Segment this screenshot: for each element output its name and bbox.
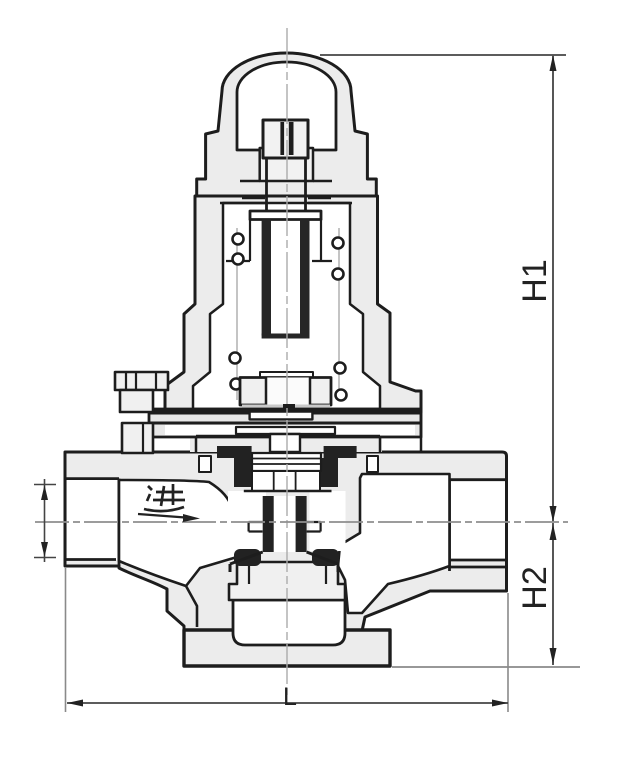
svg-text:H1: H1 [516,259,554,302]
svg-text:L: L [283,683,297,711]
svg-text:H2: H2 [516,566,554,609]
